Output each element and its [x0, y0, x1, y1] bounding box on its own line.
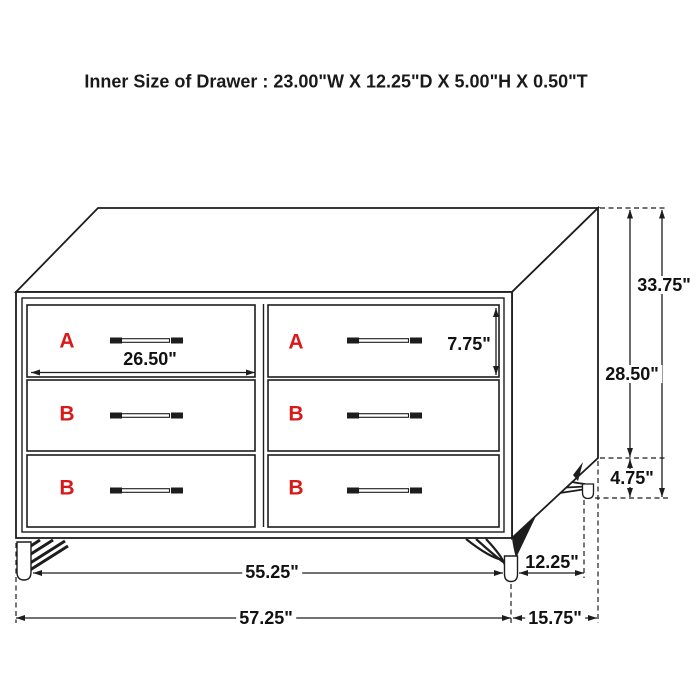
drawer-label: B: [59, 478, 74, 499]
dim-drawer-front-width: 26.50": [123, 350, 177, 368]
dim-case-height: 28.50": [602, 365, 662, 383]
dim-front-leg-spacing: 55.25": [242, 563, 302, 581]
drawer-label: A: [288, 332, 303, 353]
dim-top-drawer-front-height: 7.75": [447, 335, 491, 353]
dim-leg-depth-spacing: 12.25": [525, 553, 579, 571]
dim-overall-depth: 15.75": [525, 609, 585, 627]
dimension-diagram: Inner Size of Drawer : 23.00"W X 12.25"D…: [0, 0, 700, 700]
dim-overall-width: 57.25": [236, 609, 296, 627]
dresser-top-face: [16, 208, 598, 292]
drawer-label: B: [59, 404, 74, 425]
drawer-label: B: [288, 404, 303, 425]
drawer-label: B: [288, 478, 303, 499]
dim-overall-height: 33.75": [634, 276, 694, 294]
drawer-label: A: [59, 331, 74, 352]
dresser-line-art: [0, 0, 700, 700]
front-left-leg: [17, 540, 68, 580]
dim-leg-height: 4.75": [607, 469, 657, 487]
